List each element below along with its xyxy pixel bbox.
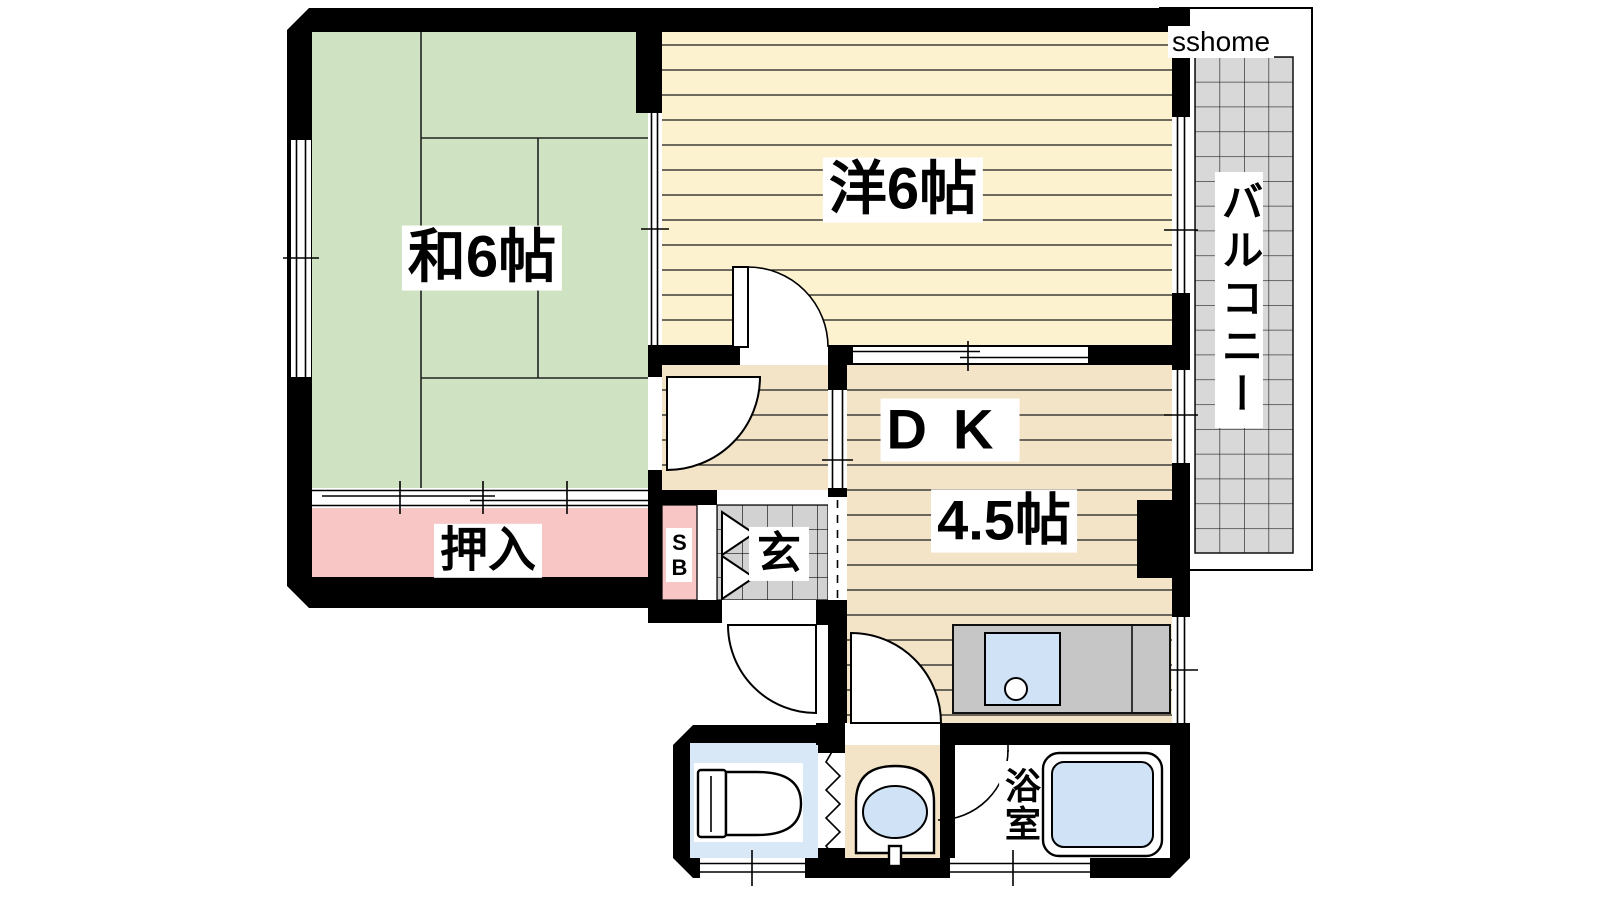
watermark-text: sshome bbox=[1168, 26, 1274, 58]
open-doorway-genkan-dk bbox=[828, 497, 847, 600]
label-dk: DK bbox=[881, 399, 1020, 462]
label-balcony: バルコニー bbox=[1215, 172, 1263, 428]
floorplan-drawing bbox=[0, 0, 1600, 900]
entrance-step bbox=[717, 490, 828, 505]
label-entrance: 玄 bbox=[749, 527, 809, 581]
kitchen-counter-icon bbox=[953, 625, 1170, 713]
toilet-icon bbox=[694, 763, 803, 842]
bathtub-icon bbox=[1043, 753, 1162, 856]
label-closet: 押入 bbox=[434, 524, 542, 578]
floorplan: 和6帖 洋6帖 DK 4.5帖 押入 玄 SB バルコニー 浴室 sshome bbox=[0, 0, 1600, 900]
label-shoebox: SB bbox=[666, 528, 692, 582]
label-bathroom: 浴室 bbox=[999, 761, 1041, 849]
accordion-door-icon bbox=[826, 750, 840, 855]
label-dk-size: 4.5帖 bbox=[931, 490, 1077, 553]
label-japanese-room: 和6帖 bbox=[402, 226, 562, 291]
front-door bbox=[728, 625, 816, 713]
label-western-room: 洋6帖 bbox=[823, 158, 983, 223]
washbasin-icon bbox=[856, 766, 934, 866]
